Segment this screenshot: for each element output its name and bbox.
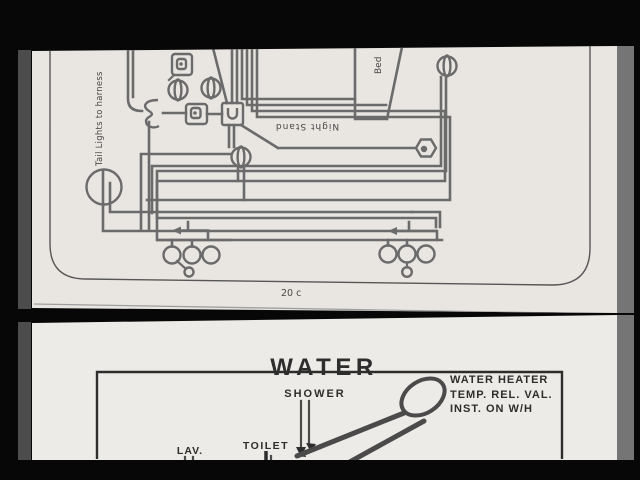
toilet-label: TOILET [243,440,289,452]
scanned-manual-page: Tail Lights to harness Bed Night Stand 2… [0,0,640,480]
left-spine-strip-bottom [18,322,31,460]
tail-lights-label: Tail Lights to harness [94,71,104,167]
bed-label: Bed [374,57,384,74]
water-heater-note-line3: INST. ON W/H [450,403,533,415]
top-page-wiring-diagram: Tail Lights to harness Bed Night Stand 2… [32,46,617,314]
water-heater-note-line2: TEMP. REL. VAL. [450,389,553,401]
water-title: WATER [270,354,377,381]
page-number: 20 c [281,288,301,299]
lav-label: LAV. [177,445,203,457]
right-edge-strip-bottom [617,315,634,460]
right-edge-strip-top [617,46,634,313]
bottom-page-water-diagram: WATER SHOWER LAV. TOILET [32,315,617,464]
water-heater-note-line1: WATER HEATER [450,374,548,386]
shower-label: SHOWER [284,388,346,400]
night-stand-label: Night Stand [275,121,339,131]
left-spine-strip-top [18,50,31,309]
scan-canvas: Tail Lights to harness Bed Night Stand 2… [0,0,640,480]
